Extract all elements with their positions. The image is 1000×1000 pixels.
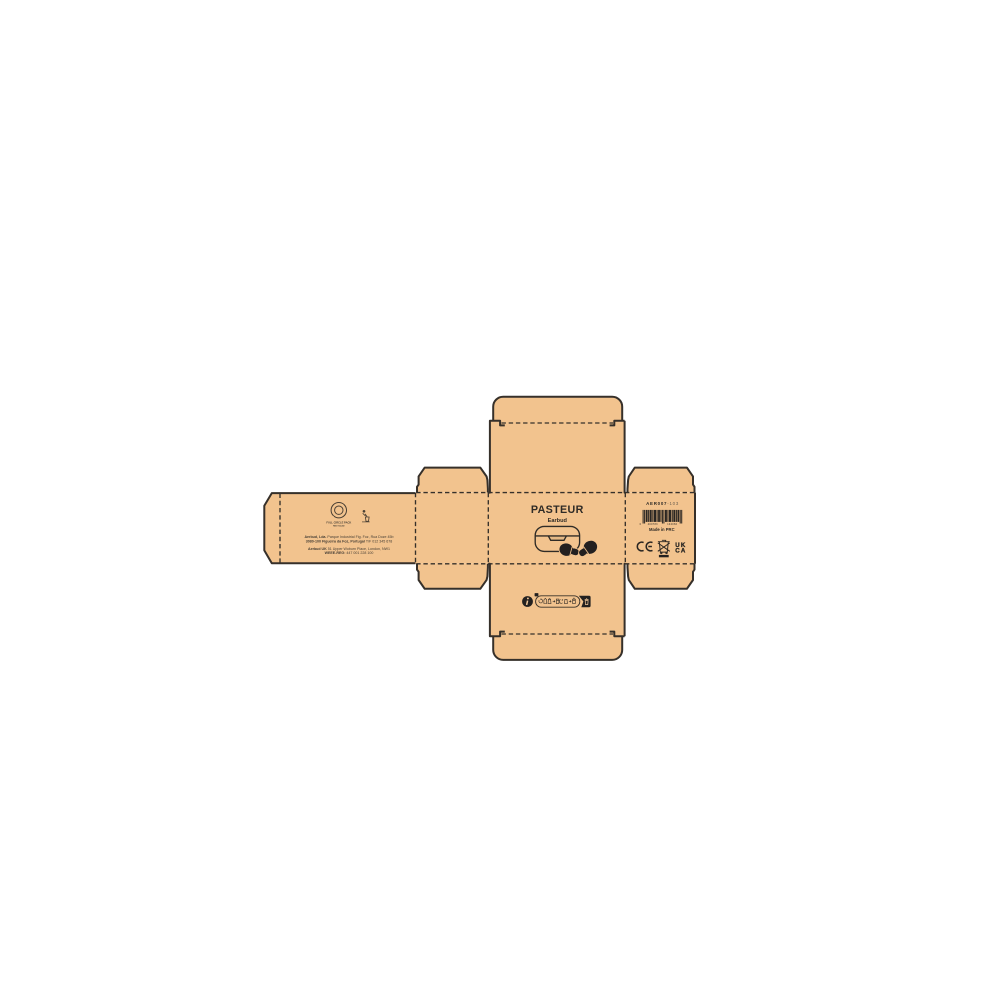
svg-text:AER007-103: AER007-103: [646, 501, 679, 506]
svg-text:Earbud: Earbud: [548, 518, 568, 524]
svg-text:RECYCLED: RECYCLED: [333, 525, 345, 527]
svg-text:FULL CIRCLE PACK: FULL CIRCLE PACK: [326, 520, 351, 524]
svg-text:CA: CA: [675, 547, 686, 554]
svg-text:3080-100 Figueira da Foz, Port: 3080-100 Figueira da Foz, Portugal T/F 0…: [306, 540, 392, 544]
svg-text:PASTEUR: PASTEUR: [531, 504, 584, 516]
svg-text:WEEE-REG: 447 001 228 100: WEEE-REG: 447 001 228 100: [325, 551, 374, 555]
svg-text:Made in PRC: Made in PRC: [649, 527, 675, 532]
svg-text:104066: 104066: [667, 523, 677, 526]
svg-text:400783: 400783: [648, 523, 658, 526]
